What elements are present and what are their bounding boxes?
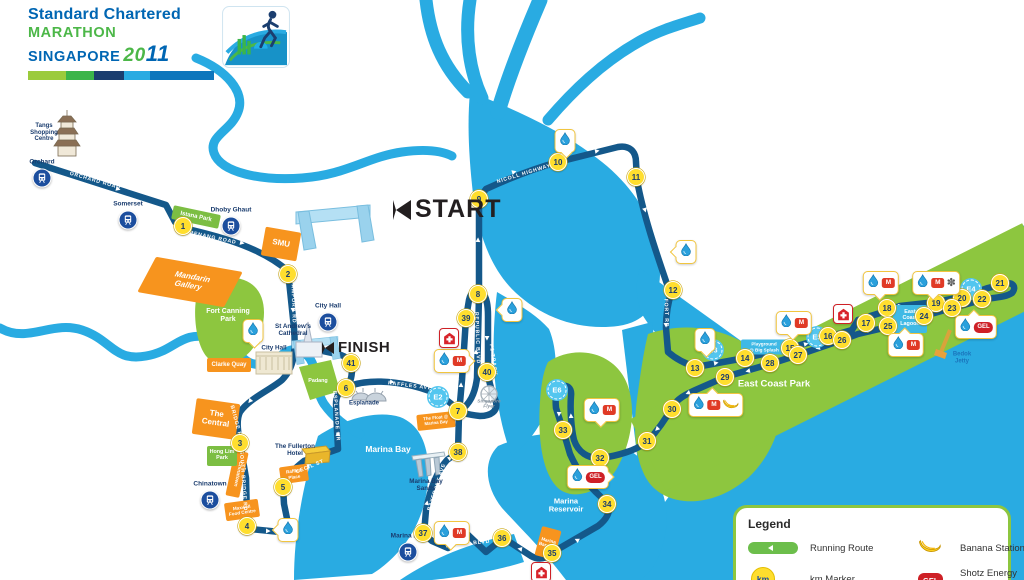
mrt-station-chinatown xyxy=(201,491,220,510)
poi-label-orange: SMU xyxy=(261,227,301,262)
finish-banner: FINISH xyxy=(322,339,390,356)
poi-label-orange: Clarke Quay xyxy=(207,358,251,372)
km-marker-7: 7 xyxy=(449,402,467,420)
water-icon xyxy=(247,322,260,340)
logo-event: MARATHON xyxy=(28,25,214,41)
mrt-label-orchard: Orchard xyxy=(29,158,54,165)
aid-station-water-m: M xyxy=(434,349,470,373)
km-marker-1: 1 xyxy=(174,217,192,235)
place-label: Tangs Shopping Centre xyxy=(30,123,58,143)
water-icon xyxy=(559,132,572,150)
marathon-route-map: Standard Chartered MARATHON SINGAPORE 20… xyxy=(0,0,1024,580)
finish-arrow-icon xyxy=(322,342,334,354)
water-icon xyxy=(588,401,601,419)
place-label: East Coast Park xyxy=(738,380,810,391)
aid-station-water xyxy=(502,298,523,322)
place-label: City Hall xyxy=(261,344,286,351)
water-icon xyxy=(780,314,793,332)
mrt-label-somerset: Somerset xyxy=(113,200,143,207)
km-marker-3: 3 xyxy=(231,434,249,452)
km-marker-2: 2 xyxy=(279,265,297,283)
aid-station-water xyxy=(555,129,576,153)
first-aid-icon xyxy=(439,328,459,348)
place-label: St Andrew's Cathedral xyxy=(275,323,311,337)
legend-gel-label: Shotz Energy Gel xyxy=(960,568,1024,580)
finish-label: FINISH xyxy=(338,339,390,356)
km-marker-27: 27 xyxy=(789,346,807,364)
km-marker-30: 30 xyxy=(663,400,681,418)
km-marker-17: 17 xyxy=(857,314,875,332)
mrt-label-dhoby-ghaut: Dhoby Ghaut xyxy=(211,206,252,213)
road-label: RAFFLES AVE xyxy=(388,380,433,391)
first-aid-icon xyxy=(833,304,853,324)
km-marker-39: 39 xyxy=(457,309,475,327)
m-icon: M xyxy=(453,528,466,539)
km-marker-12: 12 xyxy=(664,281,682,299)
aid-station-water xyxy=(676,240,697,264)
logo-color-bar xyxy=(28,71,214,80)
place-label: The Fullerton Hotel xyxy=(275,443,315,457)
mrt-station-somerset xyxy=(119,211,138,230)
banana-icon xyxy=(723,396,740,414)
poi-label-orange: Mandarin Gallery xyxy=(137,257,242,308)
legend-title: Legend xyxy=(748,517,996,531)
running-route-icon xyxy=(748,542,798,554)
start-banner: START xyxy=(393,195,501,224)
aid-station-water xyxy=(243,319,264,343)
km-marker-icon: km xyxy=(751,567,775,580)
start-arrow-icon xyxy=(393,200,411,220)
event-logo: Standard Chartered MARATHON SINGAPORE 20… xyxy=(28,6,290,80)
water-icon xyxy=(282,521,295,539)
aid-station-water-m-banana: M xyxy=(688,393,743,417)
km-marker-8: 8 xyxy=(469,285,487,303)
water-icon xyxy=(680,243,693,261)
m-icon: M xyxy=(931,278,944,289)
mrt-station-orchard xyxy=(33,169,52,188)
water-icon xyxy=(699,331,712,349)
runner-emblem xyxy=(222,6,290,68)
place-label: Esplanade xyxy=(349,401,379,408)
legend-banana-label: Banana Station xyxy=(960,543,1024,554)
km-marker-13: 13 xyxy=(686,359,704,377)
place-label: Marina Bay Sands xyxy=(409,478,443,492)
aid-station-water-m: M xyxy=(776,311,812,335)
m-icon: M xyxy=(707,400,720,411)
place-label: Bedok Jetty xyxy=(953,351,971,364)
banana-icon xyxy=(918,538,960,558)
km-marker-11: 11 xyxy=(627,168,645,186)
aid-station-water-gel: GEL xyxy=(955,315,997,339)
aid-station-water-m: M xyxy=(584,398,620,422)
km-marker-4: 4 xyxy=(238,517,256,535)
place-label: Marina Bay xyxy=(365,445,410,455)
logo-city: SINGAPORE 2011 xyxy=(28,41,214,67)
km-marker-41: 41 xyxy=(342,354,360,372)
aid-station-water-m: M xyxy=(888,333,924,357)
legend-km-label: km Marker xyxy=(810,574,918,580)
km-marker-34: 34 xyxy=(598,495,616,513)
logo-brand: Standard Chartered xyxy=(28,6,214,24)
m-icon: M xyxy=(882,278,895,289)
km-marker-5: 5 xyxy=(274,478,292,496)
km-marker-33: 33 xyxy=(554,421,572,439)
km-marker-21: 21 xyxy=(991,274,1009,292)
map-overlays: 1234567891011121314151617181920212223242… xyxy=(0,0,1024,580)
road-label: MOUNTBATTEN RD xyxy=(640,183,662,242)
aid-station-water-m: M xyxy=(863,271,899,295)
road-label: ESPLANADE DR xyxy=(331,391,341,442)
fan-icon: ✽ xyxy=(947,278,956,289)
start-label: START xyxy=(415,195,501,224)
water-icon xyxy=(506,301,519,319)
water-icon xyxy=(959,318,972,336)
road-label: STAMFORD RD xyxy=(289,277,297,324)
aid-station-water xyxy=(278,518,299,542)
km-marker-14: 14 xyxy=(736,349,754,367)
km-marker-26: 26 xyxy=(833,331,851,349)
water-icon xyxy=(867,274,880,292)
aid-station-water-gel: GEL xyxy=(567,465,609,489)
km-marker-28: 28 xyxy=(761,354,779,372)
aid-station-water xyxy=(695,328,716,352)
water-icon xyxy=(571,468,584,486)
gel-icon: GEL xyxy=(918,570,960,580)
km-marker-6: 6 xyxy=(337,379,355,397)
place-label: Padang xyxy=(308,378,327,384)
mrt-label-city-hall: City Hall xyxy=(315,302,341,309)
road-label: CECIL ST xyxy=(295,459,325,476)
km-marker-24: 24 xyxy=(915,307,933,325)
mrt-label-chinatown: Chinatown xyxy=(193,480,226,487)
water-icon xyxy=(692,396,705,414)
km-marker-35: 35 xyxy=(543,544,561,562)
m-icon: M xyxy=(603,405,616,416)
mrt-station-city-hall xyxy=(319,313,338,332)
km-marker-37: 37 xyxy=(414,524,432,542)
km-marker-18: 18 xyxy=(878,299,896,317)
aid-station-water-m: M xyxy=(434,521,470,545)
road-label: ORCHARD ROAD xyxy=(69,171,121,191)
mrt-station-marina-bay xyxy=(399,543,418,562)
gel-icon: GEL xyxy=(974,322,993,333)
road-label: NICOLL HIGHWAY xyxy=(496,163,551,185)
km-marker-40: 40 xyxy=(478,363,496,381)
gel-icon: GEL xyxy=(586,472,605,483)
water-icon xyxy=(916,274,929,292)
km-marker-22: 22 xyxy=(973,290,991,308)
water-icon xyxy=(892,336,905,354)
road-label: FORT RD xyxy=(663,299,670,328)
place-label: Marina Reservoir xyxy=(549,498,584,515)
m-icon: M xyxy=(795,318,808,329)
legend-running-route-label: Running Route xyxy=(810,543,918,554)
mrt-station-dhoby-ghaut xyxy=(222,217,241,236)
km-marker-36: 36 xyxy=(493,529,511,547)
logo-year: 2011 xyxy=(123,41,169,67)
water-icon xyxy=(438,352,451,370)
water-icon xyxy=(438,524,451,542)
km-marker-38: 38 xyxy=(449,443,467,461)
km-marker-29: 29 xyxy=(716,368,734,386)
m-icon: M xyxy=(907,340,920,351)
expressway-marker-e6: E6 xyxy=(548,381,567,400)
legend-panel: Legend Running Route Banana Station km k… xyxy=(733,505,1011,580)
m-icon: M xyxy=(453,356,466,367)
first-aid-icon xyxy=(531,562,551,580)
place-label: Singapore Flyer xyxy=(477,400,500,411)
aid-station-water-m-fan: M✽ xyxy=(912,271,960,295)
km-marker-31: 31 xyxy=(638,432,656,450)
